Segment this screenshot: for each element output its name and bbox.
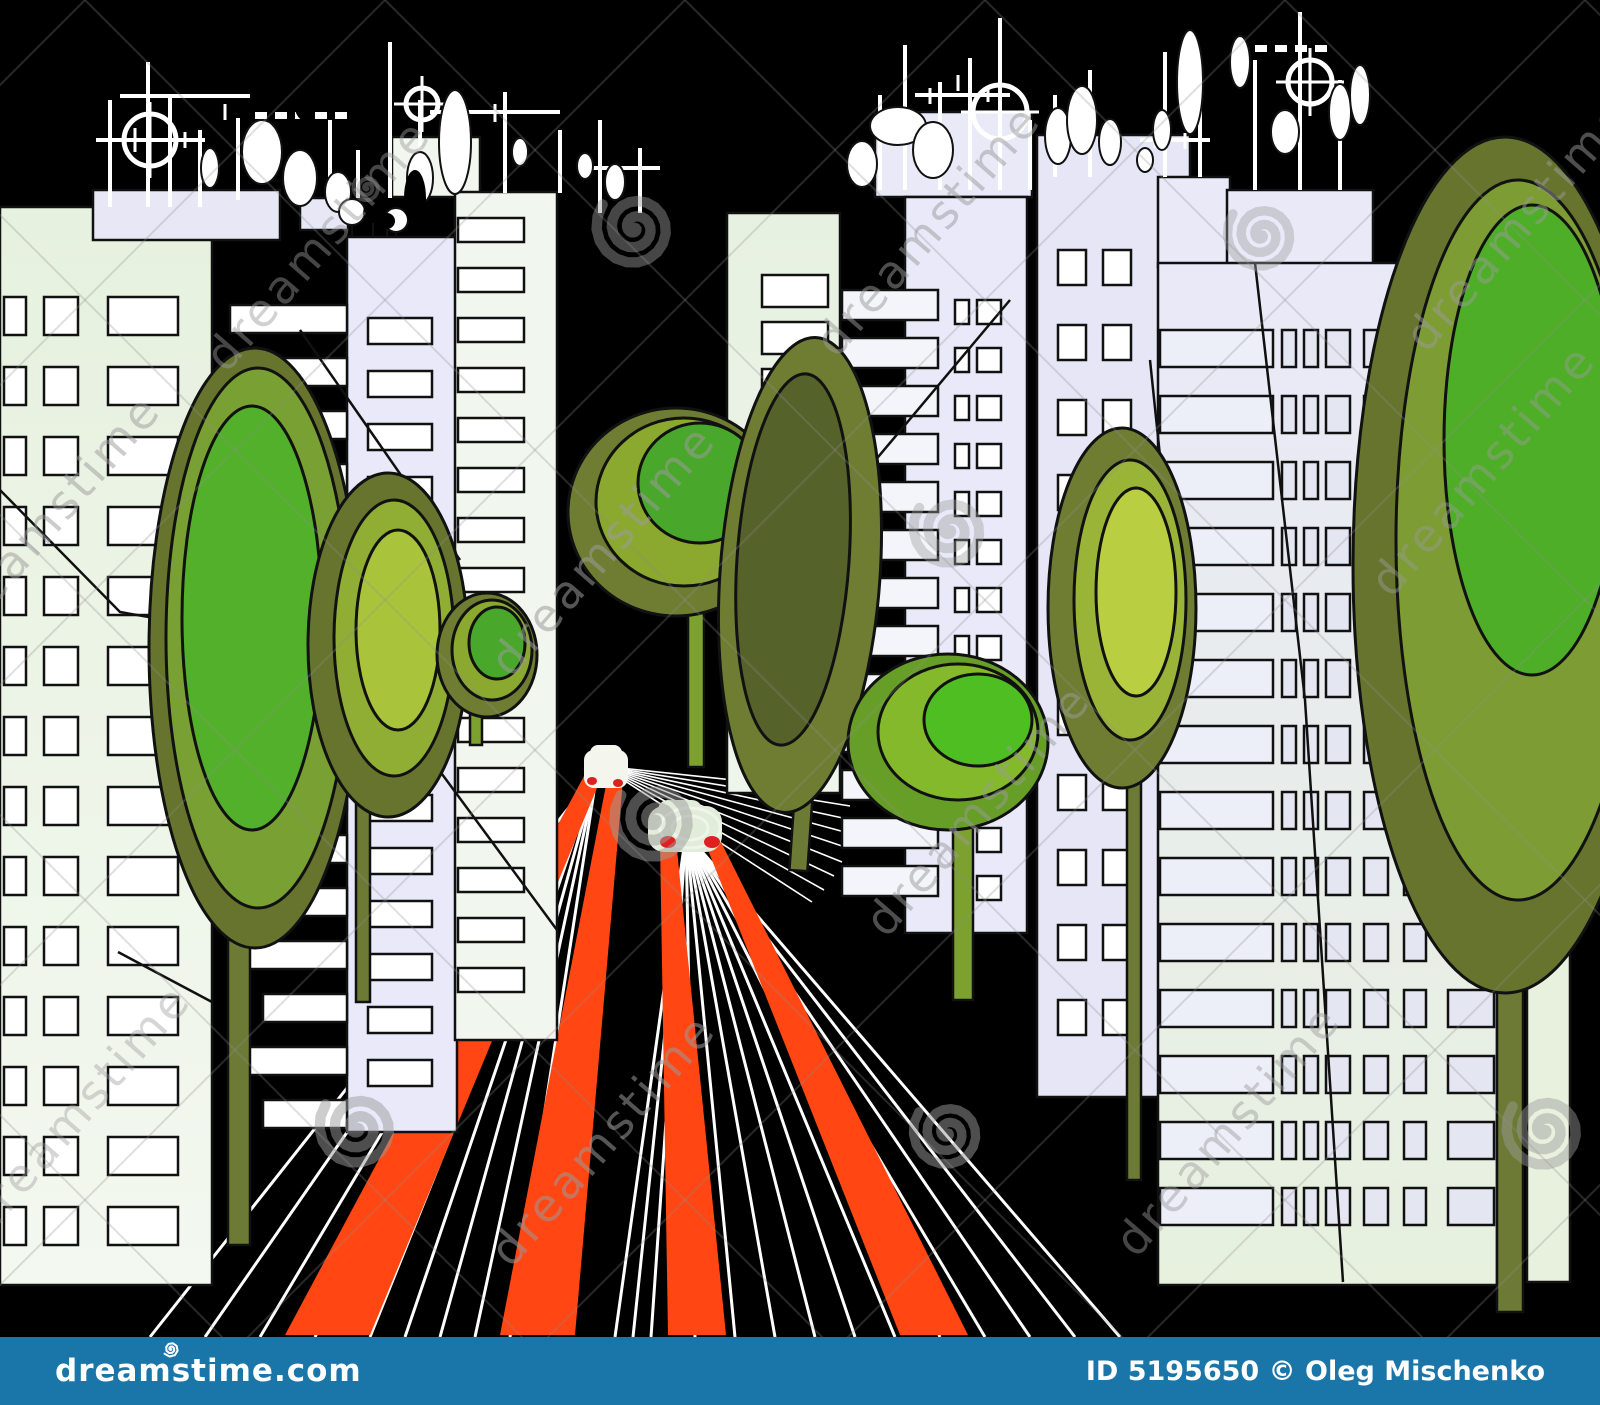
tail-light — [587, 777, 597, 785]
window — [977, 396, 1001, 420]
window — [44, 787, 78, 825]
window — [1282, 726, 1296, 763]
window — [4, 857, 26, 895]
tail-light — [704, 836, 720, 848]
tree-canopy-layer — [1096, 488, 1176, 696]
window — [1326, 726, 1350, 763]
window — [1160, 792, 1273, 829]
window — [1282, 924, 1296, 961]
satellite-dish-icon — [605, 164, 625, 200]
window — [1058, 925, 1086, 960]
window — [44, 997, 78, 1035]
window — [1448, 1188, 1494, 1225]
window — [4, 297, 26, 335]
window — [1448, 990, 1494, 1027]
window — [44, 367, 78, 405]
window — [1364, 858, 1388, 895]
window — [1282, 462, 1296, 499]
window — [1304, 462, 1318, 499]
watermark-footer: dreamstime.com ID 5195650 © Oleg Mischen… — [0, 1337, 1600, 1405]
window — [44, 577, 78, 615]
window — [1058, 325, 1086, 360]
window — [1282, 330, 1296, 367]
rooftop-slab-right — [1158, 177, 1230, 267]
window — [1282, 1188, 1296, 1225]
tree-trunk — [1127, 750, 1141, 1180]
window — [1282, 858, 1296, 895]
window — [458, 368, 524, 392]
satellite-dish-icon — [242, 120, 282, 184]
window — [368, 1060, 432, 1086]
satellite-dish-icon — [512, 138, 528, 166]
window — [977, 636, 1001, 660]
window — [1304, 528, 1318, 565]
window — [1448, 1056, 1494, 1093]
window — [458, 918, 524, 942]
window — [1058, 850, 1086, 885]
window — [1304, 1188, 1318, 1225]
window — [1364, 1122, 1388, 1159]
window — [1304, 1122, 1318, 1159]
window — [44, 717, 78, 755]
window — [977, 444, 1001, 468]
window — [1326, 792, 1350, 829]
window — [4, 787, 26, 825]
city-illustration: dreamstimedreamstimedreamstimedreamstime… — [0, 0, 1600, 1405]
window — [955, 300, 969, 324]
window — [1364, 924, 1388, 961]
window — [4, 1067, 26, 1105]
window — [1364, 1188, 1388, 1225]
window — [108, 857, 178, 895]
window — [368, 848, 432, 874]
window — [955, 588, 969, 612]
window — [1448, 1122, 1494, 1159]
window — [1282, 792, 1296, 829]
window — [44, 297, 78, 335]
window — [1326, 1122, 1350, 1159]
tree-trunk — [688, 600, 704, 767]
window — [4, 927, 26, 965]
window — [1160, 396, 1273, 433]
stock-image-preview: dreamstimedreamstimedreamstimedreamstime… — [0, 0, 1600, 1405]
window — [1326, 924, 1350, 961]
window — [1404, 1188, 1426, 1225]
window — [1160, 330, 1273, 367]
window — [4, 647, 26, 685]
window — [1282, 660, 1296, 697]
window — [1404, 1122, 1426, 1159]
window — [977, 588, 1001, 612]
window — [1326, 858, 1350, 895]
window — [1058, 1000, 1086, 1035]
window — [1282, 396, 1296, 433]
window — [1364, 1056, 1388, 1093]
satellite-dish-icon — [439, 90, 471, 194]
tree-trunk — [228, 900, 250, 1245]
window — [955, 444, 969, 468]
window — [368, 424, 432, 450]
tree-trunk — [356, 800, 370, 1002]
window — [368, 954, 432, 980]
window — [1058, 775, 1086, 810]
window — [977, 348, 1001, 372]
window — [458, 968, 524, 992]
window — [1103, 325, 1131, 360]
window — [977, 492, 1001, 516]
window — [458, 818, 524, 842]
window — [955, 396, 969, 420]
window — [1304, 396, 1318, 433]
window — [1058, 250, 1086, 285]
dreamstime-logo: dreamstime.com — [55, 1353, 362, 1389]
window — [108, 297, 178, 335]
tree-canopy-layer — [356, 530, 440, 730]
window — [4, 437, 26, 475]
window — [1103, 250, 1131, 285]
window — [4, 717, 26, 755]
window — [1326, 462, 1350, 499]
window — [1364, 990, 1388, 1027]
window — [458, 568, 524, 592]
window — [458, 518, 524, 542]
window — [4, 997, 26, 1035]
window — [4, 367, 26, 405]
satellite-dish-icon — [283, 150, 317, 206]
window — [1404, 924, 1426, 961]
window — [368, 371, 432, 397]
window — [458, 318, 524, 342]
window — [1326, 396, 1350, 433]
window — [1058, 400, 1086, 435]
window — [368, 1007, 432, 1033]
window — [44, 647, 78, 685]
window — [1326, 660, 1350, 697]
tail-light — [613, 779, 623, 787]
window — [1326, 594, 1350, 631]
window — [1304, 660, 1318, 697]
window — [458, 218, 524, 242]
window — [1160, 858, 1273, 895]
car-far — [584, 745, 628, 788]
dreamstime-logo-text: dreamstime.com — [55, 1353, 362, 1389]
window — [458, 268, 524, 292]
window — [44, 927, 78, 965]
satellite-dish-icon — [1329, 84, 1351, 140]
satellite-dish-icon — [847, 141, 877, 187]
window — [1304, 330, 1318, 367]
satellite-dish-icon — [1177, 30, 1203, 134]
window — [368, 318, 432, 344]
window — [1282, 1122, 1296, 1159]
image-id-text: ID 5195650 © Oleg Mischenko — [1086, 1356, 1545, 1387]
satellite-dish-icon — [1271, 110, 1299, 154]
dreamstime-logo-spiral-icon — [161, 1339, 181, 1359]
window — [762, 275, 828, 307]
satellite-dish-icon — [577, 153, 593, 179]
window — [108, 1207, 178, 1245]
